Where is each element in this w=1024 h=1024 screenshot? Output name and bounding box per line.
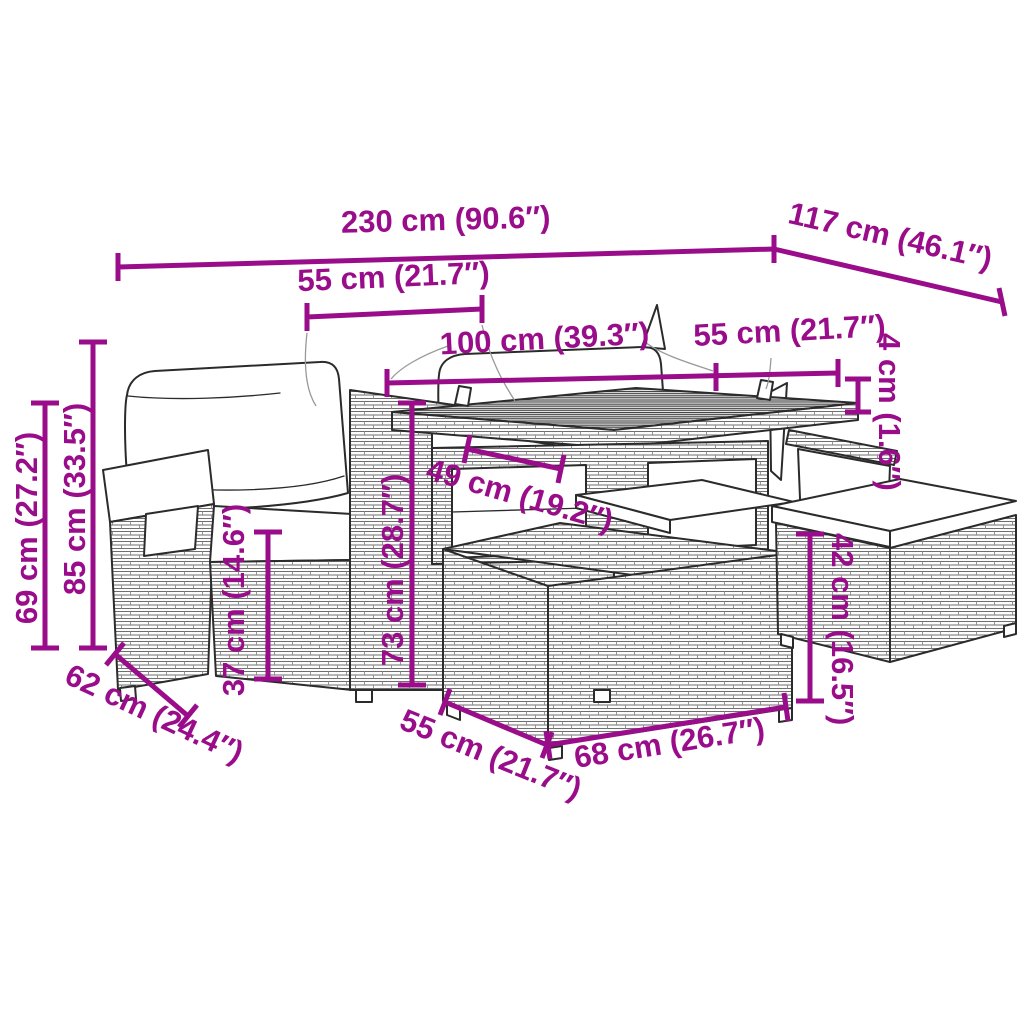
table-clip-right <box>757 380 773 400</box>
dim-total-width-label: 230 cm (90.6″) <box>341 199 551 239</box>
dim-seat-height-label: 37 cm (14.6″) <box>216 504 251 696</box>
dim-total-depth-label: 117 cm (46.1″) <box>785 195 995 276</box>
table-clip-left <box>455 386 471 406</box>
dim-ottoman-height-label: 42 cm (16.5″) <box>825 533 860 725</box>
sofa-left-armrest-window <box>144 506 198 556</box>
diagram-canvas: 230 cm (90.6″) 117 cm (46.1″) 55 cm (21.… <box>0 0 1024 1024</box>
dim-table-width-label: 55 cm (21.7″) <box>692 308 886 353</box>
dim-table-width: 55 cm (21.7″) <box>692 308 886 353</box>
dim-seat-width-label: 55 cm (21.7″) <box>297 255 491 298</box>
dim-backrest-height: 85 cm (33.5″) <box>57 342 107 648</box>
right-ottoman-body-right <box>890 515 1016 662</box>
dimension-diagram: 230 cm (90.6″) 117 cm (46.1″) 55 cm (21.… <box>0 0 1024 1024</box>
dim-backrest-height-label: 85 cm (33.5″) <box>57 403 92 595</box>
dim-armrest-height-label: 69 cm (27.2″) <box>9 432 44 624</box>
dim-seat-width: 55 cm (21.7″) <box>297 255 491 331</box>
dim-tabletop-thickness-label: 4 cm (1.6″) <box>872 333 907 491</box>
dim-total-depth: 117 cm (46.1″) <box>774 195 1005 316</box>
dim-table-height-label: 73 cm (28.7″) <box>375 474 410 666</box>
dim-armrest-height: 69 cm (27.2″) <box>9 403 59 648</box>
